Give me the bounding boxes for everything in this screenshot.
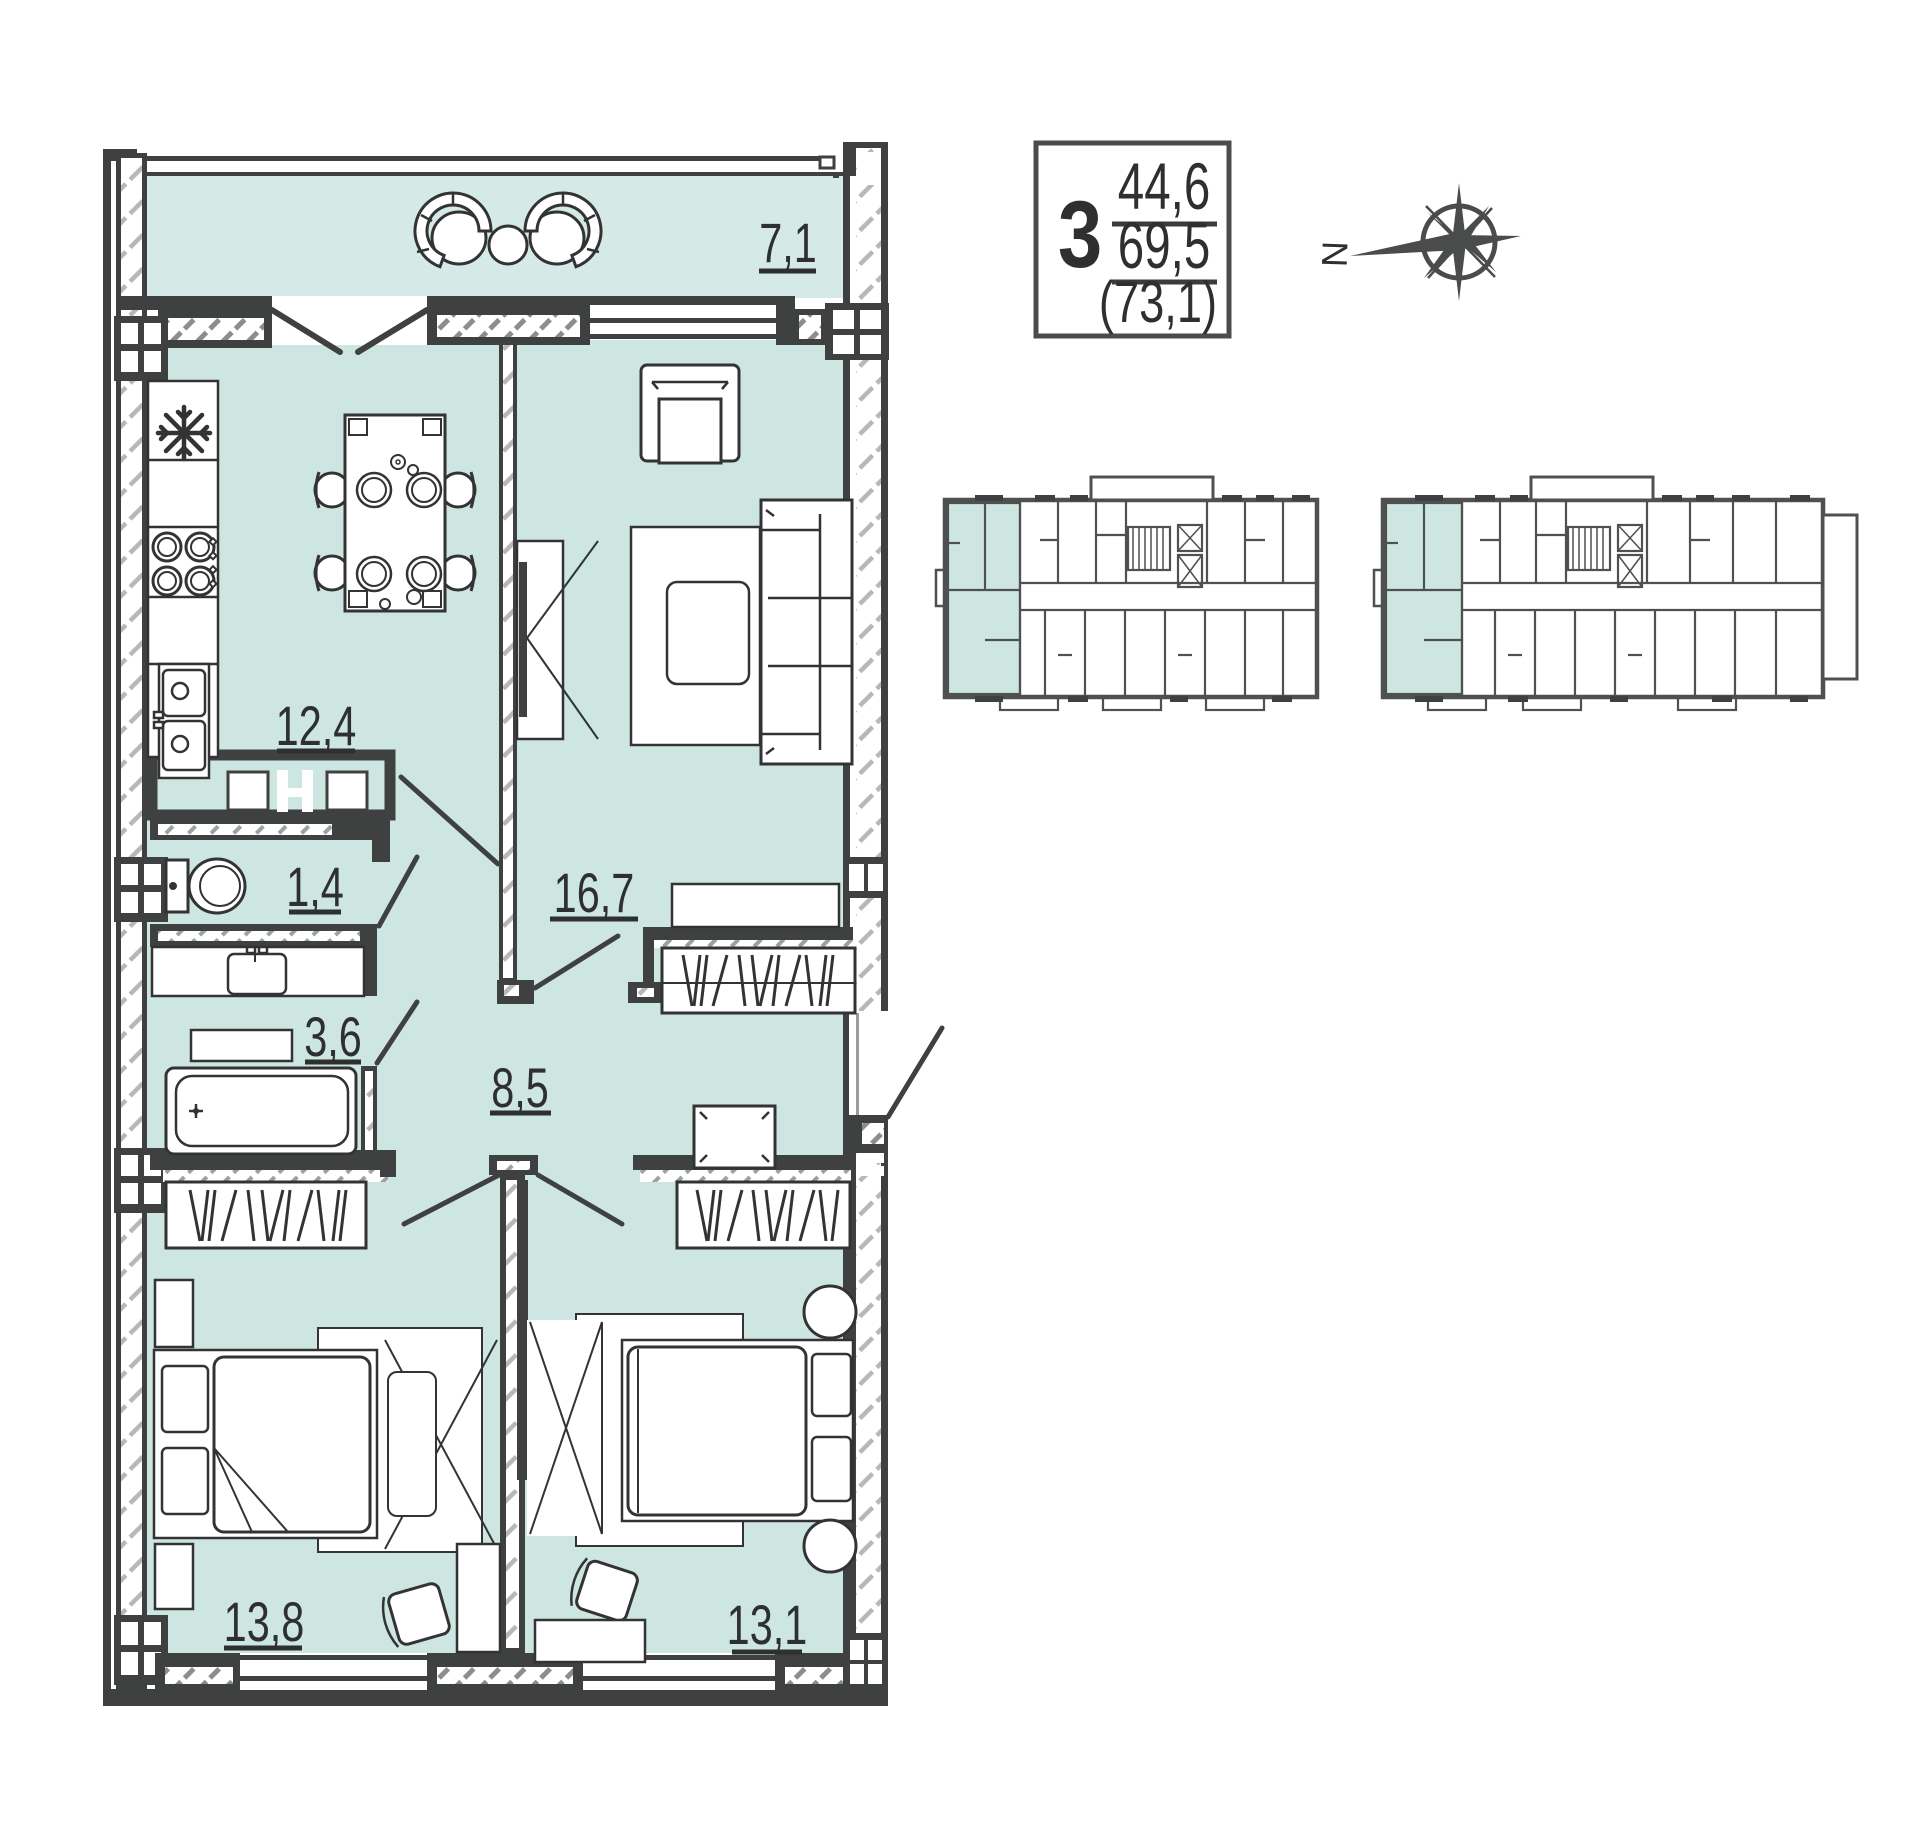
svg-text:3: 3 — [1058, 181, 1102, 287]
svg-text:8,5: 8,5 — [491, 1057, 549, 1120]
svg-text:7,1: 7,1 — [759, 212, 817, 275]
svg-text:12,4: 12,4 — [276, 695, 357, 758]
svg-text:13,1: 13,1 — [727, 1594, 808, 1657]
svg-text:3,6: 3,6 — [304, 1006, 362, 1069]
svg-text:N: N — [1314, 240, 1356, 267]
svg-text:13,8: 13,8 — [224, 1591, 305, 1654]
svg-text:(73,1): (73,1) — [1099, 271, 1217, 336]
svg-text:16,7: 16,7 — [554, 862, 635, 925]
svg-text:1,4: 1,4 — [286, 856, 344, 919]
